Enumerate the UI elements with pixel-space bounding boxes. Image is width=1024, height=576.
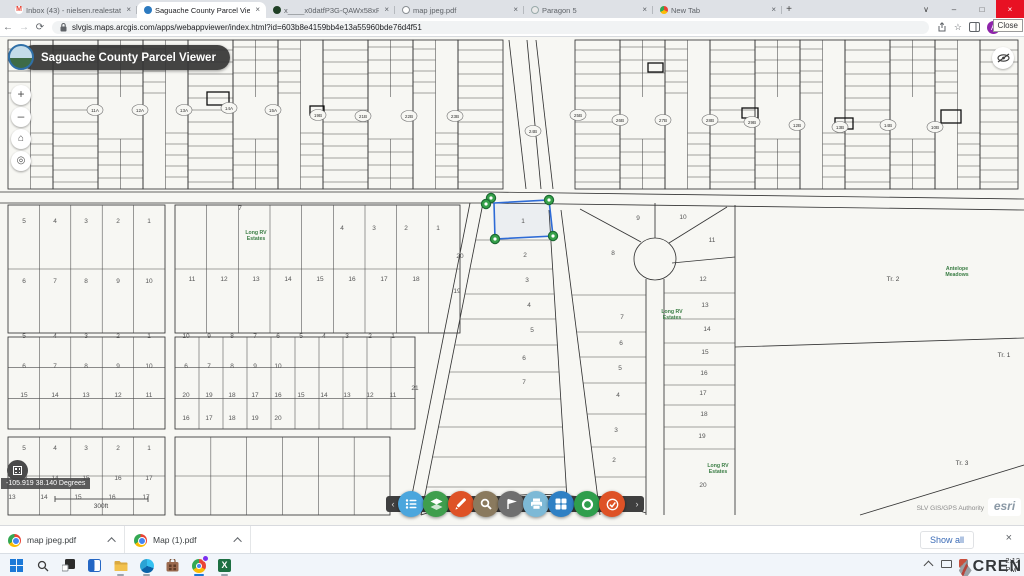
- lot-number: 17: [145, 475, 153, 482]
- layers-icon: [430, 498, 443, 511]
- lot-number: 18: [412, 276, 420, 283]
- block-label: 23B: [451, 114, 459, 119]
- lot-number: 20: [699, 482, 707, 489]
- downloads-close-icon[interactable]: ×: [1006, 532, 1012, 544]
- hide-overlay-button[interactable]: [992, 47, 1014, 69]
- lot-number: 3: [345, 333, 349, 340]
- lot-number: 7: [53, 363, 57, 370]
- tab-title: New Tab: [671, 6, 766, 15]
- tab-title: Inbox (43) - nielsen.realestate@: [26, 6, 121, 15]
- lot-number: 14: [51, 392, 59, 399]
- lot-number: 18: [700, 411, 708, 418]
- draw-icon: [455, 498, 467, 510]
- block-label: 10B: [931, 125, 939, 130]
- lot-number: 4: [527, 302, 531, 309]
- taskbar-store-icon[interactable]: [164, 557, 181, 574]
- lot-number: 2: [116, 333, 120, 340]
- gmail-favicon: M: [15, 6, 23, 14]
- lot-number: 1: [391, 333, 395, 340]
- block-label: 26B: [616, 118, 624, 123]
- lot-number: 9: [253, 363, 257, 370]
- dock-scroll-right-icon[interactable]: ›: [632, 498, 642, 510]
- lot-number: 15: [316, 276, 324, 283]
- lot-number: 5: [618, 365, 622, 372]
- lot-number: 3: [84, 445, 88, 452]
- lot-number: 10: [679, 214, 687, 221]
- taskbar-search-icon[interactable]: [34, 557, 51, 574]
- cren-watermark: CREN: [959, 558, 1022, 576]
- lot-number: 5: [299, 333, 303, 340]
- block-label: 13A: [180, 108, 189, 113]
- url-text: slvgis.maps.arcgis.com/apps/webappviewer…: [72, 23, 422, 32]
- lot-number: 10: [145, 278, 153, 285]
- taskbar-edge-icon[interactable]: [138, 557, 155, 574]
- tab-search-chevron-icon[interactable]: ∨: [912, 0, 940, 18]
- block-label: 27B: [659, 118, 667, 123]
- block-label: 29B: [748, 120, 756, 125]
- lot-number: 15: [74, 494, 82, 501]
- lot-number: 9: [116, 363, 120, 370]
- block-label: 11A: [91, 108, 100, 113]
- browser-tab-3[interactable]: x____x0datfP3G-QAWx58xR655×: [266, 2, 395, 18]
- lot-number: 6: [22, 278, 26, 285]
- taskbar-excel-icon[interactable]: X: [216, 557, 233, 574]
- lot-number: 13: [252, 276, 260, 283]
- lot-number: 8: [230, 333, 234, 340]
- legend-button[interactable]: [398, 491, 424, 517]
- lot-number: 4: [340, 225, 344, 232]
- browser-tab-6[interactable]: New Tab×: [653, 2, 782, 18]
- lot-number: 4: [53, 333, 57, 340]
- lot-number: 16: [348, 276, 356, 283]
- show-all-downloads-button[interactable]: Show all: [920, 531, 974, 549]
- share-icon[interactable]: [937, 22, 947, 32]
- lot-number: 16: [700, 370, 708, 377]
- tab-title: map jpeg.pdf: [413, 6, 508, 15]
- side-panel-icon[interactable]: [969, 22, 980, 32]
- tab-close-icon[interactable]: ×: [640, 6, 649, 14]
- lot-number: 19: [205, 392, 213, 399]
- lot-number: 6: [619, 340, 623, 347]
- lot-number: 3: [84, 218, 88, 225]
- lot-number: 7: [253, 333, 257, 340]
- lot-number: 12: [220, 276, 228, 283]
- lot-number: 10: [274, 363, 282, 370]
- block-label: 13B: [836, 125, 844, 130]
- lot-number: 21: [411, 385, 419, 392]
- county-logo-icon: [8, 44, 34, 70]
- lot-number: 20: [274, 415, 282, 422]
- cren-logo-icon: [959, 562, 972, 576]
- lot-number: 7: [238, 205, 242, 212]
- lot-number: 1: [147, 218, 151, 225]
- lot-number: 11: [390, 392, 397, 399]
- close-tooltip: Close: [993, 19, 1023, 32]
- tab-title: Paragon 5: [542, 6, 637, 15]
- lot-number: 13: [343, 392, 351, 399]
- lot-number: 1: [147, 445, 151, 452]
- lot-number: 14: [40, 494, 48, 501]
- tract-label: Tr. 2: [887, 276, 900, 283]
- download-item-1[interactable]: map jpeg.pdf: [0, 526, 125, 554]
- lot-number: 17: [251, 392, 259, 399]
- lot-number: 17: [699, 390, 707, 397]
- new-tab-button[interactable]: +: [782, 3, 796, 17]
- tab-title: Saguache County Parcel Viewer: [155, 6, 250, 15]
- download-filename: Map (1).pdf: [153, 535, 230, 545]
- subdivision-label: Estates: [709, 469, 728, 475]
- print-icon: [530, 498, 543, 510]
- lot-number: 5: [22, 218, 26, 225]
- select-icon: [606, 498, 619, 511]
- tray-chevron-icon[interactable]: [924, 561, 934, 571]
- maximize-button[interactable]: □: [968, 0, 996, 18]
- lot-number: 2: [116, 445, 120, 452]
- lot-number: 2: [612, 457, 616, 464]
- lot-number: 5: [530, 327, 534, 334]
- browser-tab-1[interactable]: MInbox (43) - nielsen.realestate@×: [8, 2, 137, 18]
- lot-number: 14: [320, 392, 328, 399]
- app-header: Saguache County Parcel Viewer: [8, 45, 230, 71]
- subdivision-label: Estates: [247, 236, 266, 242]
- taskbar-file-explorer-icon[interactable]: [112, 557, 129, 574]
- lot-number: 9: [207, 333, 211, 340]
- subdivision-label: Estates: [663, 315, 682, 321]
- search-button[interactable]: [473, 491, 499, 517]
- lot-number: 13: [701, 302, 709, 309]
- download-filename: map jpeg.pdf: [27, 535, 104, 545]
- lot-number: 11: [709, 237, 716, 244]
- basemap-icon: [555, 498, 567, 510]
- scale-label: 300ft: [94, 503, 109, 510]
- paragon-favicon: [531, 6, 539, 14]
- lot-number: 6: [184, 363, 188, 370]
- block-label: 22B: [405, 114, 413, 119]
- cren-text: CREN: [973, 558, 1022, 576]
- lot-number: 18: [228, 415, 236, 422]
- lot-number: 18: [228, 392, 236, 399]
- map-attribution: SLV GIS/GPS Authority: [917, 505, 984, 512]
- lot-number: 12: [699, 276, 707, 283]
- lot-number: 10: [182, 333, 190, 340]
- browser-tab-4[interactable]: map jpeg.pdf×: [395, 2, 524, 18]
- address-bar: ← → ⟳ slvgis.maps.arcgis.com/apps/webapp…: [0, 18, 1024, 37]
- lot-number: 15: [20, 392, 28, 399]
- browser-tab-5[interactable]: Paragon 5×: [524, 2, 653, 18]
- lot-number: 9: [636, 215, 640, 222]
- tract-label: Tr. 3: [956, 460, 969, 467]
- block-label: 12A: [136, 108, 145, 113]
- lot-number: 1: [147, 333, 151, 340]
- lot-number: 4: [53, 445, 57, 452]
- draw-button[interactable]: [448, 491, 474, 517]
- lot-number: 3: [614, 427, 618, 434]
- bookmark-star-icon[interactable]: ☆: [954, 22, 962, 33]
- lot-number: 19: [251, 415, 259, 422]
- lot-number: 3: [372, 225, 376, 232]
- lot-number: 11: [146, 392, 153, 399]
- lot-number: 4: [616, 392, 620, 399]
- lot-number: 16: [274, 392, 282, 399]
- lot-number: 15: [701, 349, 709, 356]
- search-icon: [480, 498, 492, 510]
- lot-number: 16: [108, 494, 116, 501]
- lot-number: 12: [114, 392, 122, 399]
- lot-number: 1: [521, 218, 525, 225]
- lot-number: 8: [611, 250, 615, 257]
- coordinates-readout: -105.919 38.140 Degrees: [1, 478, 90, 489]
- block-label: 14B: [884, 123, 892, 128]
- lot-number: 2: [404, 225, 408, 232]
- locate-button[interactable]: ◎: [11, 151, 31, 171]
- arcgis-favicon: [144, 6, 152, 14]
- lot-number: 8: [84, 278, 88, 285]
- taskbar-chrome-icon[interactable]: [190, 557, 207, 574]
- lot-number: 17: [142, 494, 150, 501]
- taskbar-task-view-icon[interactable]: [60, 557, 77, 574]
- browser-tab-2[interactable]: Saguache County Parcel Viewer×: [137, 2, 266, 18]
- lot-number: 19: [698, 433, 706, 440]
- lot-number: 17: [380, 276, 388, 283]
- tab-close-icon[interactable]: ×: [253, 6, 262, 14]
- block-label: 12B: [793, 123, 801, 128]
- omnibox[interactable]: slvgis.maps.arcgis.com/apps/webappviewer…: [52, 21, 929, 34]
- chevron-up-icon[interactable]: [233, 537, 241, 545]
- grid-icon: [13, 466, 22, 475]
- map-viewport[interactable]: 11A12A13A14A15A19B21B22B23B24B25B26B27B2…: [0, 37, 1024, 525]
- subdivision-label: Meadows: [945, 272, 968, 278]
- lot-number: 7: [207, 363, 211, 370]
- block-label: 24B: [529, 129, 537, 134]
- pdf-file-icon: [8, 534, 21, 547]
- tab-close-icon[interactable]: ×: [382, 6, 391, 14]
- tab-strip: MInbox (43) - nielsen.realestate@×Saguac…: [0, 0, 1024, 18]
- app-favicon: [273, 6, 281, 14]
- lot-number: 7: [522, 379, 526, 386]
- basemap-button[interactable]: [548, 491, 574, 517]
- tract-label: Tr. 1: [998, 352, 1011, 359]
- lot-number: 9: [116, 278, 120, 285]
- lot-number: 11: [189, 276, 196, 283]
- taskbar-start-icon[interactable]: [8, 557, 25, 574]
- tab-title: x____x0datfP3G-QAWx58xR655: [284, 6, 379, 15]
- lot-number: 6: [22, 363, 26, 370]
- lot-number: 5: [22, 445, 26, 452]
- lot-number: 8: [84, 363, 88, 370]
- legend-icon: [405, 498, 417, 510]
- lot-number: 13: [82, 392, 90, 399]
- lot-number: 15: [297, 392, 305, 399]
- lot-number: 10: [145, 363, 153, 370]
- lot-number: 20: [182, 392, 190, 399]
- lot-number: 5: [22, 333, 26, 340]
- near-me-icon: [505, 498, 517, 510]
- print-button[interactable]: [523, 491, 549, 517]
- lot-number: 8: [230, 363, 234, 370]
- forward-icon[interactable]: →: [16, 22, 32, 33]
- taskbar-widgets-icon[interactable]: [86, 557, 103, 574]
- notification-badge: [202, 555, 209, 562]
- screen: MInbox (43) - nielsen.realestate@×Saguac…: [0, 0, 1024, 576]
- near-me-button[interactable]: [498, 491, 524, 517]
- download-item-2[interactable]: Map (1).pdf: [126, 526, 251, 554]
- lot-number: 1: [436, 225, 440, 232]
- lot-number: 7: [53, 278, 57, 285]
- block-label: 21B: [359, 114, 367, 119]
- lot-number: 6: [522, 355, 526, 362]
- minimize-button[interactable]: –: [940, 0, 968, 18]
- eye-slash-icon: [997, 53, 1010, 63]
- lot-number: 13: [8, 494, 16, 501]
- downloads-bar: map jpeg.pdfMap (1).pdf Show all ×: [0, 525, 1024, 553]
- select-button[interactable]: [599, 491, 625, 517]
- tray-display-icon[interactable]: [941, 560, 952, 568]
- lot-number: 2: [368, 333, 372, 340]
- zoom-out-button[interactable]: –: [11, 107, 31, 127]
- home-button[interactable]: ⌂: [11, 129, 31, 149]
- lot-number: 2: [116, 218, 120, 225]
- parcel-map[interactable]: 11A12A13A14A15A19B21B22B23B24B25B26B27B2…: [0, 37, 1024, 525]
- lot-number: 12: [366, 392, 374, 399]
- block-label: 14A: [225, 106, 234, 111]
- lot-number: 7: [620, 314, 624, 321]
- chevron-up-icon[interactable]: [107, 537, 115, 545]
- lot-number: 14: [703, 326, 711, 333]
- tab-close-icon[interactable]: ×: [124, 6, 133, 14]
- lot-number: 4: [322, 333, 326, 340]
- dock-scroll-left-icon[interactable]: ‹: [388, 498, 398, 510]
- lock-icon: [60, 23, 67, 32]
- lot-number: 3: [84, 333, 88, 340]
- lot-number: 6: [276, 333, 280, 340]
- lot-number: 20: [456, 253, 464, 260]
- lot-number: 3: [525, 277, 529, 284]
- refresh-icon[interactable]: ⟳: [32, 22, 48, 33]
- measure-button[interactable]: [574, 491, 600, 517]
- lot-number: 2: [523, 252, 527, 259]
- block-label: 25B: [574, 113, 582, 118]
- lot-number: 19: [453, 288, 461, 295]
- lot-number: 14: [284, 276, 292, 283]
- lot-number: 17: [205, 415, 213, 422]
- block-label: 19B: [314, 113, 322, 118]
- close-button[interactable]: ×: [996, 0, 1024, 18]
- tab-close-icon[interactable]: ×: [769, 6, 778, 14]
- globe-favicon: [402, 6, 410, 14]
- lot-number: 4: [53, 218, 57, 225]
- taskbar: X 2:12 PM CREN: [0, 553, 1024, 576]
- tab-close-icon[interactable]: ×: [511, 6, 520, 14]
- pdf-file-icon: [134, 534, 147, 547]
- zoom-in-button[interactable]: +: [11, 85, 31, 105]
- lot-number: 16: [182, 415, 190, 422]
- layers-button[interactable]: [423, 491, 449, 517]
- back-icon[interactable]: ←: [0, 22, 16, 33]
- esri-logo: esri: [988, 498, 1021, 516]
- page-title: Saguache County Parcel Viewer: [21, 45, 230, 70]
- lot-number: 16: [114, 475, 122, 482]
- block-label: 28B: [706, 118, 714, 123]
- block-label: 15A: [269, 108, 278, 113]
- measure-icon: [581, 498, 594, 511]
- chrome-favicon: [660, 6, 668, 14]
